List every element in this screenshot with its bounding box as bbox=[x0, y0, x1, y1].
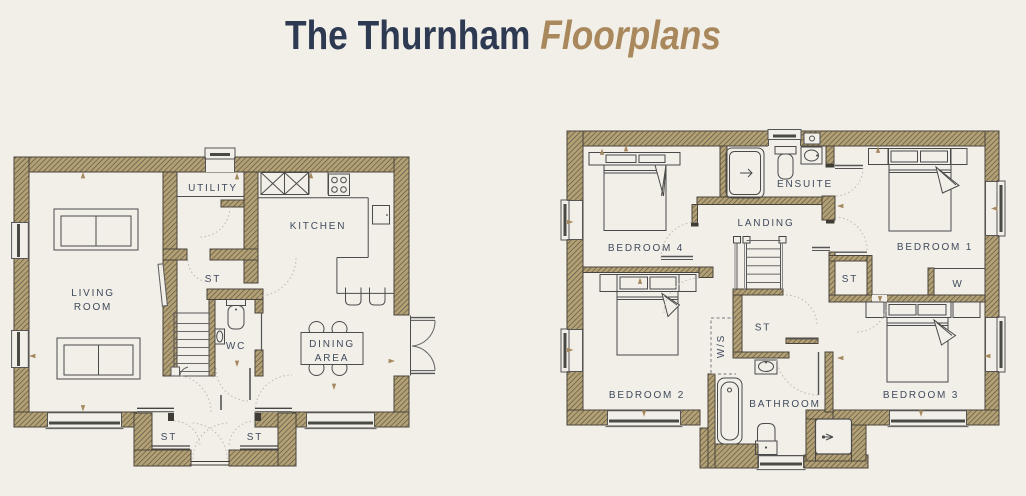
svg-text:UTILITY: UTILITY bbox=[188, 183, 238, 194]
svg-text:BEDROOM 2: BEDROOM 2 bbox=[609, 390, 685, 401]
svg-text:WC: WC bbox=[226, 341, 246, 352]
svg-text:ENSUITE: ENSUITE bbox=[777, 179, 833, 190]
svg-text:BATHROOM: BATHROOM bbox=[749, 399, 820, 410]
svg-text:LANDING: LANDING bbox=[737, 218, 794, 229]
svg-text:W: W bbox=[952, 279, 963, 290]
svg-text:BEDROOM 1: BEDROOM 1 bbox=[897, 242, 973, 253]
svg-text:ST: ST bbox=[247, 432, 263, 443]
svg-text:ST: ST bbox=[205, 274, 221, 285]
svg-text:AREA: AREA bbox=[315, 353, 349, 364]
svg-text:DINING: DINING bbox=[309, 339, 355, 350]
svg-text:LIVING: LIVING bbox=[71, 288, 115, 299]
svg-text:ROOM: ROOM bbox=[74, 302, 112, 313]
svg-text:BEDROOM 3: BEDROOM 3 bbox=[883, 390, 959, 401]
svg-text:ST: ST bbox=[842, 274, 858, 285]
svg-text:W/S: W/S bbox=[716, 334, 727, 358]
svg-text:BEDROOM 4: BEDROOM 4 bbox=[608, 243, 684, 254]
svg-text:ST: ST bbox=[161, 432, 177, 443]
svg-text:The Thurnham Floorplans: The Thurnham Floorplans bbox=[285, 12, 721, 58]
svg-text:KITCHEN: KITCHEN bbox=[290, 221, 347, 232]
svg-text:ST: ST bbox=[755, 323, 771, 334]
